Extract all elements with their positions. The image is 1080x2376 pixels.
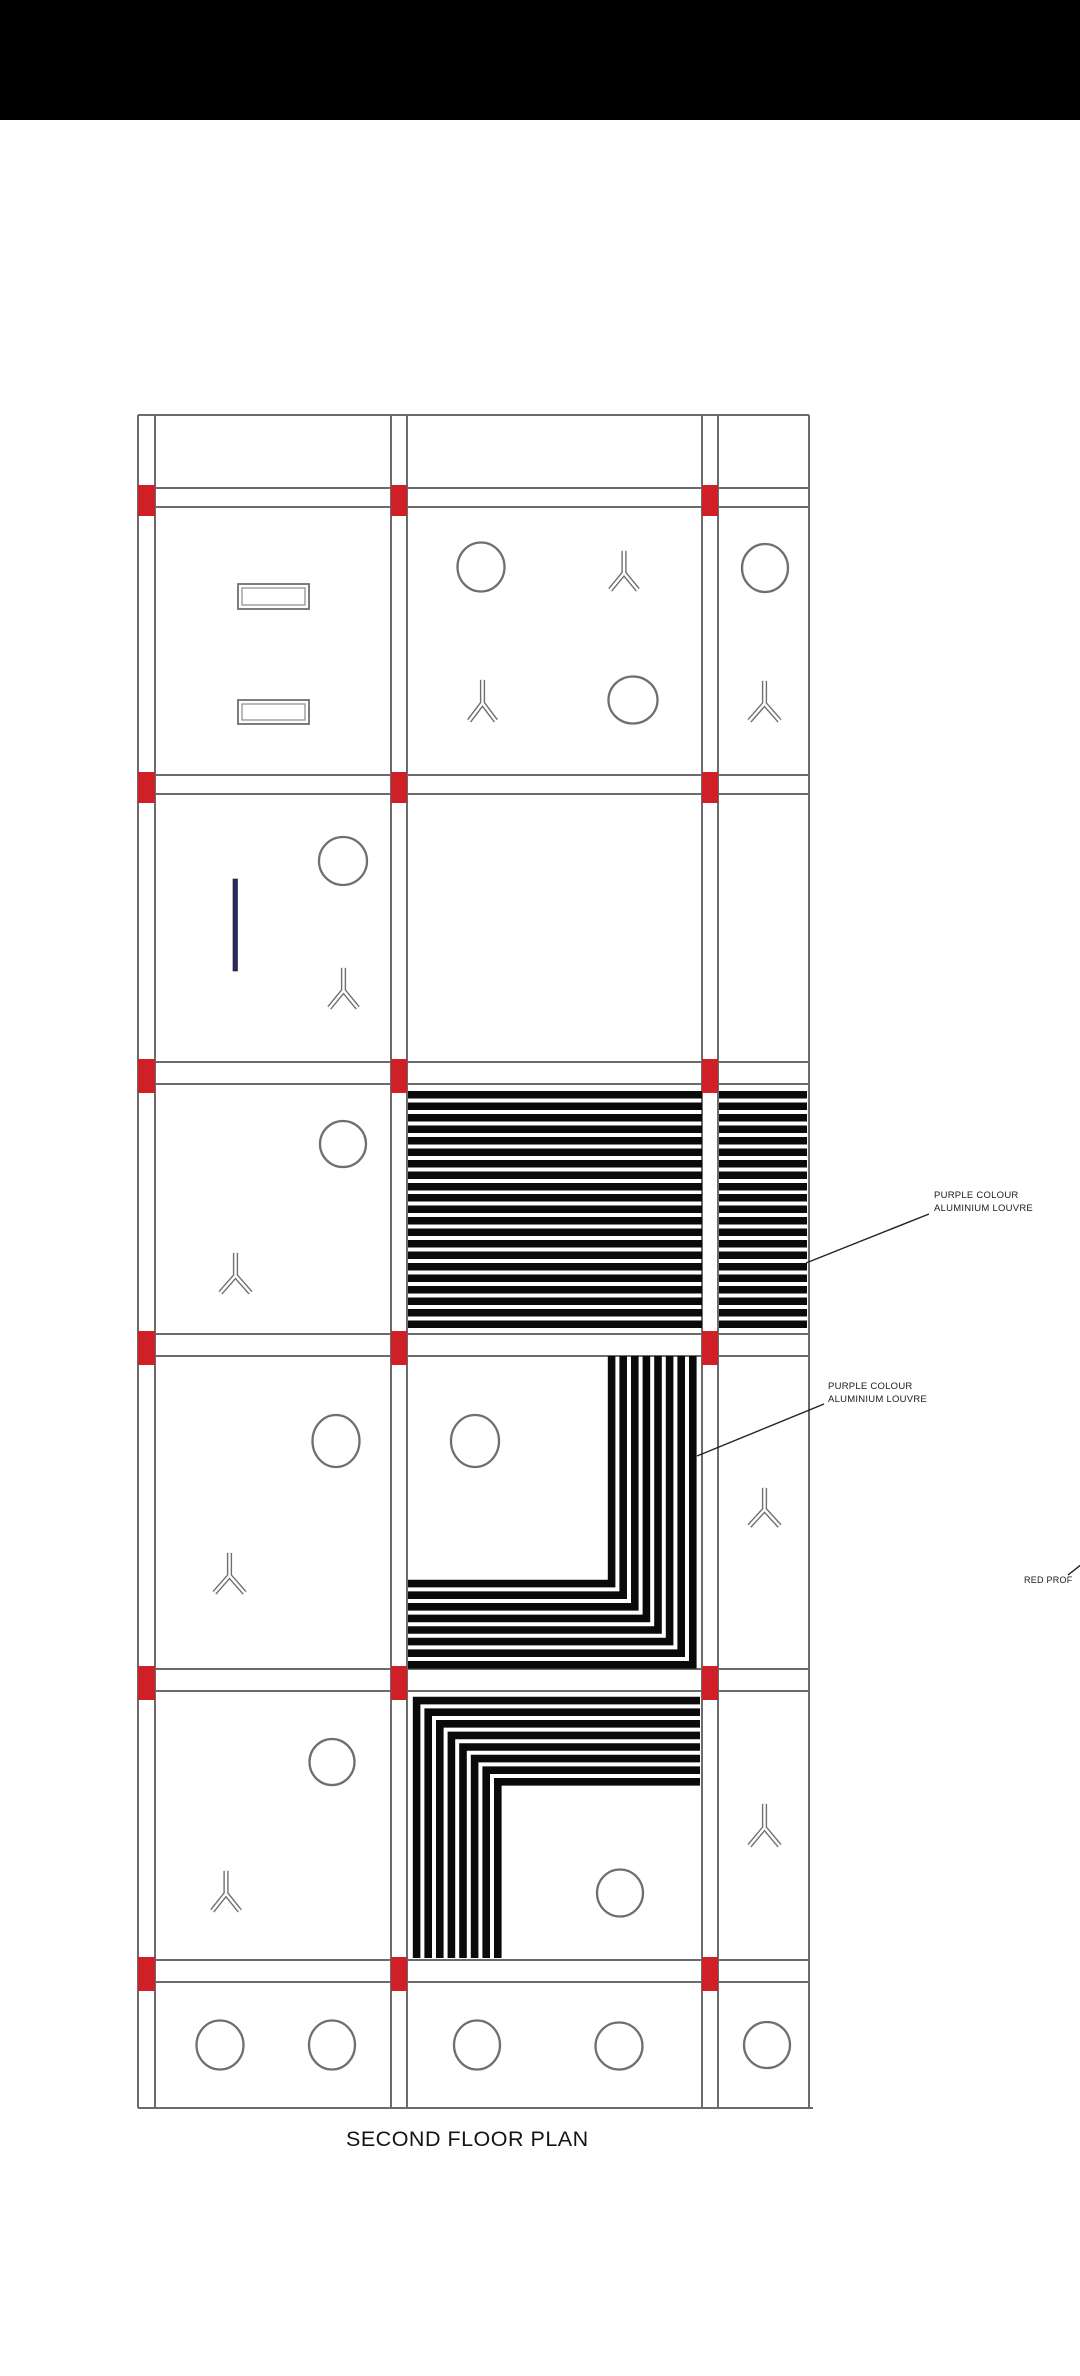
circle-symbol	[597, 1870, 643, 1917]
plant-symbol-inner	[214, 1553, 244, 1593]
louvre-l-stripe	[417, 1701, 700, 1958]
louvre-hatch-bar	[719, 1297, 807, 1305]
circle-symbol	[319, 837, 367, 885]
louvre-hatch-bar	[719, 1309, 807, 1317]
red-column-marker	[391, 1331, 407, 1365]
louvre-hatch-bar	[719, 1091, 807, 1099]
louvre-l-stripe	[408, 1356, 623, 1595]
red-column-marker	[702, 772, 718, 803]
red-column-marker	[702, 1957, 718, 1991]
drawing-title: SECOND FLOOR PLAN	[346, 2127, 589, 2152]
red-profile-annotation: RED PROF	[1024, 1574, 1073, 1586]
louvre-l-stripe	[408, 1356, 635, 1607]
louvre-hatch-bar	[719, 1206, 807, 1214]
plant-symbol-inner	[329, 968, 357, 1008]
louvre-hatch-bar	[719, 1114, 807, 1122]
louvre-hatch-bar	[408, 1309, 702, 1317]
louvre-hatch-bar	[719, 1125, 807, 1133]
louvre-hatch-bar	[408, 1102, 702, 1110]
circle-symbol	[320, 1121, 366, 1167]
annotation-line: PURPLE COLOUR	[934, 1190, 1019, 1201]
louvre-hatch-bar	[408, 1286, 702, 1294]
louvre-hatch-bar	[719, 1183, 807, 1191]
plant-symbol-inner	[220, 1253, 250, 1293]
red-column-marker	[391, 772, 407, 803]
leader-line	[697, 1404, 824, 1456]
red-column-marker	[138, 1331, 155, 1365]
red-column-marker	[138, 1666, 155, 1700]
louvre-hatch-bar	[719, 1240, 807, 1248]
circle-symbol	[744, 2022, 790, 2068]
louvre-hatch-bar	[719, 1229, 807, 1237]
louvre-hatch-bar	[408, 1263, 702, 1271]
circle-symbol	[309, 2021, 355, 2070]
louvre-annotation-2: PURPLE COLOUR ALUMINIUM LOUVRE	[828, 1381, 927, 1407]
louvre-hatch-bar	[408, 1320, 702, 1328]
louvre-hatch-bar	[408, 1148, 702, 1156]
plant-symbol-inner	[212, 1871, 240, 1911]
louvre-annotation-1: PURPLE COLOUR ALUMINIUM LOUVRE	[934, 1190, 1033, 1216]
plant-symbol-inner	[610, 551, 638, 590]
louvre-hatch-bar	[408, 1275, 702, 1283]
red-column-marker	[138, 1957, 155, 1991]
leader-line	[806, 1214, 929, 1263]
louvre-hatch-bar	[408, 1252, 702, 1260]
louvre-hatch-bar	[719, 1217, 807, 1225]
louvre-hatch-bar	[408, 1137, 702, 1145]
louvre-hatch-bar	[719, 1160, 807, 1168]
louvre-l-stripe	[475, 1759, 700, 1958]
circle-symbol	[451, 1415, 499, 1467]
louvre-hatch-bar	[719, 1263, 807, 1271]
louvre-hatch-bar	[719, 1286, 807, 1294]
circle-symbol	[596, 2023, 643, 2070]
annotation-line: RED PROF	[1024, 1575, 1073, 1585]
red-column-marker	[391, 1666, 407, 1700]
louvre-hatch-bar	[408, 1217, 702, 1225]
floor-plan-drawing	[0, 0, 1080, 2376]
louvre-hatch-bar	[408, 1171, 702, 1179]
red-column-marker	[391, 1059, 407, 1093]
plant-symbol-inner	[749, 1488, 779, 1526]
louvre-hatch-bar	[408, 1206, 702, 1214]
louvre-hatch-bar	[408, 1183, 702, 1191]
louvre-l-stripe	[498, 1782, 700, 1958]
red-column-marker	[391, 485, 407, 516]
louvre-hatch-bar	[408, 1194, 702, 1202]
red-column-marker	[138, 772, 155, 803]
drawing-sheet: PURPLE COLOUR ALUMINIUM LOUVRE PURPLE CO…	[0, 0, 1080, 2376]
louvre-hatch-bar	[408, 1091, 702, 1099]
circle-symbol	[310, 1739, 355, 1785]
door-panel-line	[233, 879, 238, 971]
louvre-hatch-bar	[408, 1114, 702, 1122]
red-column-marker	[702, 1059, 718, 1093]
red-column-marker	[138, 1059, 155, 1093]
louvre-l-stripe	[486, 1770, 700, 1958]
louvre-hatch-bar	[408, 1297, 702, 1305]
circle-symbol	[458, 543, 505, 592]
louvre-hatch-bar	[719, 1194, 807, 1202]
circle-symbol	[197, 2021, 244, 2070]
louvre-hatch-bar	[719, 1171, 807, 1179]
louvre-hatch-bar	[719, 1148, 807, 1156]
plant-symbol-inner	[749, 681, 779, 721]
circle-symbol	[313, 1415, 360, 1467]
louvre-hatch-bar	[719, 1102, 807, 1110]
louvre-hatch-bar	[408, 1125, 702, 1133]
annotation-line: ALUMINIUM LOUVRE	[934, 1203, 1033, 1214]
plant-symbol-inner	[749, 1804, 779, 1846]
louvre-hatch-bar	[719, 1137, 807, 1145]
louvre-hatch-bar	[408, 1229, 702, 1237]
louvre-hatch-bar	[408, 1240, 702, 1248]
red-column-marker	[138, 485, 155, 516]
louvre-hatch-bar	[719, 1275, 807, 1283]
circle-symbol	[454, 2021, 500, 2070]
circle-symbol	[609, 677, 658, 724]
annotation-line: ALUMINIUM LOUVRE	[828, 1394, 927, 1405]
louvre-hatch-bar	[408, 1160, 702, 1168]
plant-symbol-inner	[469, 680, 496, 721]
louvre-hatch-bar	[719, 1252, 807, 1260]
red-column-marker	[702, 485, 718, 516]
annotation-line: PURPLE COLOUR	[828, 1381, 913, 1392]
red-column-marker	[391, 1957, 407, 1991]
louvre-hatch-bar	[719, 1320, 807, 1328]
circle-symbol	[742, 544, 788, 592]
louvre-l-stripe	[408, 1356, 612, 1584]
red-column-marker	[702, 1666, 718, 1700]
red-column-marker	[702, 1331, 718, 1365]
